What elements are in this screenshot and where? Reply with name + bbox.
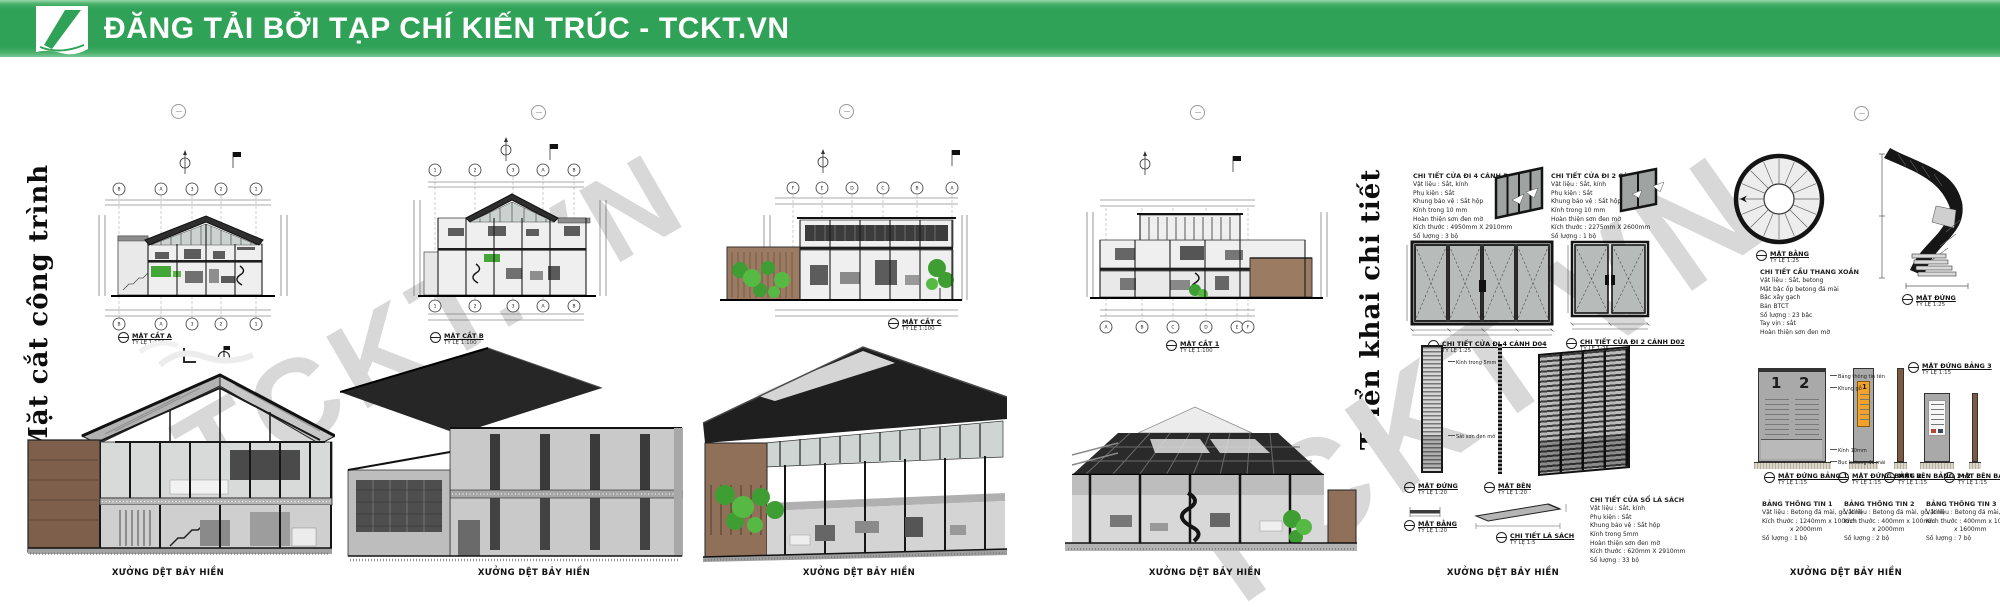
header-banner: ĐĂNG TẢI BỞI TẠP CHÍ KIẾN TRÚC - TCKT.VN <box>0 0 2000 57</box>
info-board-3-elevation <box>1924 393 1950 462</box>
svg-text:D: D <box>1204 325 1208 331</box>
svg-text:1: 1 <box>434 304 437 310</box>
svg-text:C: C <box>881 186 884 192</box>
svg-text:F: F <box>792 186 795 192</box>
board-base-plinth <box>1894 462 1907 469</box>
header-title: ĐĂNG TẢI BỞI TẠP CHÍ KIẾN TRÚC - TCKT.VN <box>104 0 790 57</box>
board-leader-label: Khung gỗ <box>1830 386 1862 392</box>
svg-text:2: 2 <box>474 168 477 174</box>
svg-text:2: 2 <box>220 187 223 193</box>
detail-ref-icon <box>888 318 899 329</box>
board-glass-band <box>1761 439 1822 459</box>
sheet-marker-icon <box>1854 106 1869 121</box>
svg-text:1: 1 <box>255 187 258 193</box>
render-caption: XƯỞNG DỆT BẢY HIỀN <box>789 568 929 578</box>
board-digit-1: 1 <box>1771 374 1781 392</box>
section-b-drawing: 12 3A B 12 3A B <box>388 100 618 345</box>
louver-plan-caption: MẶT BẰNGTỶ LỆ 1:20 <box>1404 520 1457 534</box>
door4-elevation-caption: CHI TIẾT CỬA ĐI 4 CÁNH D04TỶ LỆ 1:25 <box>1428 340 1547 354</box>
board-directory-lines <box>1795 399 1819 435</box>
board-leader-label: Bảng thông tin tên <box>1830 374 1885 380</box>
louver-screen-3d <box>1538 346 1630 476</box>
render-caption: XƯỞNG DỆT BẢY HIỀN <box>1135 568 1275 578</box>
svg-text:B: B <box>117 187 120 193</box>
poster-text-lines <box>1931 404 1944 426</box>
svg-text:B: B <box>1140 325 1143 331</box>
sheet-marker-icon <box>1190 105 1205 120</box>
board-frame-top <box>1759 369 1825 372</box>
board-digit-1: 1 <box>1862 383 1867 391</box>
louver-side-caption: MẶT BÊNTỶ LỆ 1:20 <box>1484 482 1531 496</box>
board-3-side-view <box>1972 393 1978 462</box>
detail-ref-icon <box>1484 482 1495 493</box>
louver-blade-3d <box>1462 496 1572 530</box>
louver-side-view <box>1498 344 1502 474</box>
svg-text:E: E <box>1236 325 1239 331</box>
poster-image-thumb <box>1931 429 1936 433</box>
louver-leader-label: Sắt sơn đen mờ <box>1448 434 1495 440</box>
render-caption: XƯỞNG DỆT BẢY HIỀN <box>464 568 604 578</box>
render-1-image <box>20 290 335 558</box>
stair-plan-caption: MẶT BẰNGTỶ LỆ 1:25 <box>1756 250 1809 264</box>
poster-image-thumb <box>1938 429 1943 433</box>
detail-ref-icon <box>1764 472 1775 483</box>
spiral-stair-3d <box>1876 136 1976 291</box>
svg-text:C: C <box>1171 325 1174 331</box>
svg-text:B: B <box>572 168 575 174</box>
louver-spec-block: CHI TIẾT CỬA SỔ LÁ SÁCH Vật liệu : Sắt, … <box>1590 496 1685 566</box>
door4-axon-icon <box>1490 164 1550 222</box>
board-base-plinth <box>1920 462 1954 469</box>
spiral-stair-plan <box>1732 152 1826 246</box>
detail-ref-icon <box>1756 250 1767 261</box>
stair-elevation-caption: MẶT ĐỨNGTỶ LỆ 1:25 <box>1902 294 1956 308</box>
detail-ref-icon <box>1404 520 1415 531</box>
door4-elevation <box>1404 238 1564 338</box>
board-poster-insert <box>1928 400 1946 436</box>
board-leader-label: Kính 10mm <box>1830 448 1867 454</box>
svg-text:F: F <box>1247 325 1250 331</box>
svg-text:3: 3 <box>191 187 194 193</box>
door2-elevation <box>1566 238 1656 335</box>
section-1-drawing: AB CD EF <box>1075 140 1345 355</box>
detail-ref-icon <box>1404 482 1415 493</box>
drawing-sheet: TCKT.VN TCKT.VN ĐĂNG TẢI BỞI TẠP CHÍ KIẾ… <box>0 0 2000 607</box>
detail-ref-icon <box>1566 338 1577 349</box>
louver-plan-view <box>1406 505 1446 519</box>
render-4-image <box>1060 395 1360 562</box>
louver-front-elevation <box>1421 345 1443 473</box>
board-base-plinth <box>1969 462 1981 469</box>
section-1-caption: MẶT CẮT 1TỶ LỆ 1:100 <box>1166 340 1219 354</box>
detail-ref-icon <box>1908 362 1919 373</box>
detail-ref-icon <box>1166 340 1177 351</box>
board-leader-label: Bục betong đá mài <box>1830 460 1885 466</box>
detail-ref-icon <box>1884 472 1895 483</box>
board-1-2-side-view <box>1897 368 1904 462</box>
board-caption: MẶT ĐỨNG BẢNG 1TỶ LỆ 1:15 <box>1764 472 1848 486</box>
section-c-caption: MẶT CẮT CTỶ LỆ 1:100 <box>888 318 941 332</box>
render-caption: XƯỞNG DỆT BẢY HIỀN <box>1776 568 1916 578</box>
svg-text:B: B <box>572 304 575 310</box>
louver-front-caption: MẶT ĐỨNGTỶ LỆ 1:20 <box>1404 482 1458 496</box>
section-c-drawing: FE DC BA <box>690 100 970 330</box>
louver-dark-band <box>1423 435 1441 469</box>
svg-text:2: 2 <box>474 304 477 310</box>
svg-text:1: 1 <box>434 168 437 174</box>
stair-spec-block: CHI TIẾT CẦU THANG XOẮN Vật liệu : Sắt, … <box>1760 268 1859 338</box>
render-2-image <box>340 330 690 562</box>
door2-axon-icon <box>1616 164 1666 216</box>
board-base-plinth <box>1754 462 1831 469</box>
board-caption: MẶT BÊN BẢNG 3TỶ LỆ 1:15 <box>1944 472 2000 486</box>
louver-screen-dark-band <box>1540 434 1628 472</box>
svg-text:3: 3 <box>512 168 515 174</box>
detail-ref-icon <box>1944 472 1955 483</box>
svg-text:B: B <box>915 186 918 192</box>
render-caption: XƯỞNG DỆT BẢY HIỀN <box>98 568 238 578</box>
board-digit-2: 2 <box>1799 374 1809 392</box>
board-directory-lines <box>1765 399 1789 435</box>
info-board-1-elevation: 1 2 <box>1758 368 1826 462</box>
board-directory-lines <box>1860 394 1869 424</box>
detail-ref-icon <box>1902 294 1913 305</box>
svg-text:3: 3 <box>512 304 515 310</box>
svg-text:D: D <box>850 186 854 192</box>
render-caption: XƯỞNG DỆT BẢY HIỀN <box>1433 568 1573 578</box>
svg-text:E: E <box>821 186 824 192</box>
louver-leader-label: Kính trong 5mm <box>1448 360 1496 366</box>
detail-ref-icon <box>1496 532 1507 543</box>
render-3-image <box>695 335 1015 562</box>
detail-ref-icon <box>1838 472 1849 483</box>
louver-blade-caption: CHI TIẾT LÁ SÁCHTỶ LỆ 1:5 <box>1496 532 1574 546</box>
board-3-elevation-caption: MẶT ĐỨNG BẢNG 3TỶ LỆ 1:15 <box>1908 362 1992 376</box>
tckt-logo-icon <box>30 2 94 56</box>
info-board-3-spec-block: BẢNG THÔNG TIN 3 Vật liệu : Betong đá mà… <box>1926 500 2000 544</box>
